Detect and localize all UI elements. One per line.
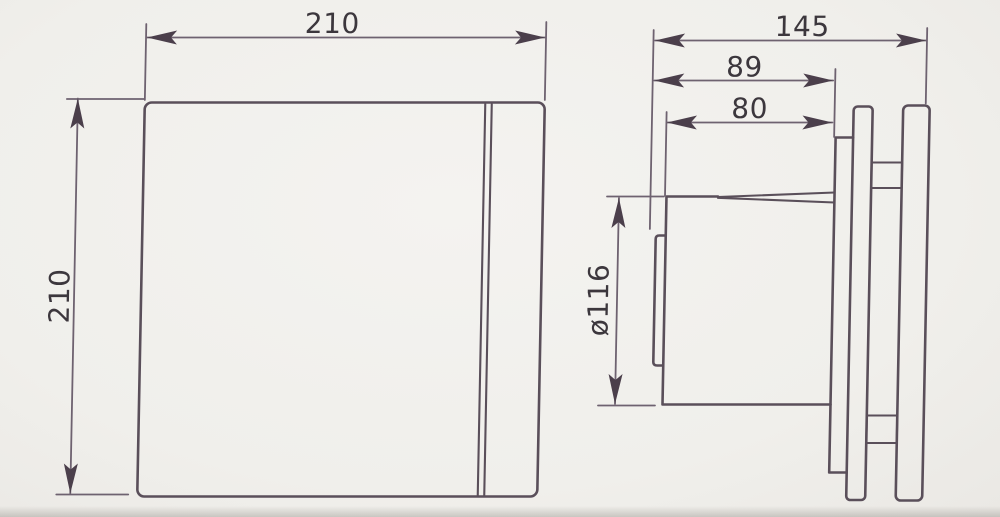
dim-front-width: 210 (145, 7, 547, 100)
dim-duct-length-label: 80 (731, 92, 768, 125)
top-mounting-clip (871, 163, 902, 189)
dim-duct-length: 80 (665, 92, 833, 195)
dim-duct-diameter-label: ø116 (581, 264, 615, 337)
dim-duct-diameter: ø116 (580, 197, 664, 406)
scan-bottom-shadow (0, 506, 1000, 517)
extension-line-right (834, 69, 835, 137)
dim-front-width-label: 210 (305, 7, 361, 40)
duct-tube (662, 197, 834, 405)
dim-duct-overall-depth-label: 89 (726, 51, 763, 84)
bottom-mounting-clip (866, 416, 897, 444)
fan-dimension-drawing: 210 210 (0, 0, 1000, 517)
extension-line-right (926, 28, 927, 104)
front-cover-profile (896, 106, 930, 501)
dimension-line (615, 198, 619, 404)
dim-total-depth-label: 145 (774, 10, 830, 43)
scanned-drawing-page: 210 210 (0, 0, 1000, 517)
dim-front-height-label: 210 (43, 269, 77, 324)
extension-line-left (665, 112, 667, 196)
drawing-skew-group: 210 210 (39, 7, 931, 500)
front-cover-edge-line-1 (478, 104, 486, 496)
dim-front-height: 210 (39, 99, 144, 495)
mounting-plate (846, 107, 873, 501)
side-view: 145 89 80 (578, 10, 931, 500)
extension-line-left (145, 24, 146, 100)
front-cover-edge-line-2 (484, 104, 492, 496)
extension-line-left (650, 30, 654, 229)
front-view: 210 210 (39, 7, 546, 496)
extension-line-right (545, 22, 546, 100)
backdraft-flap-line (718, 193, 835, 203)
